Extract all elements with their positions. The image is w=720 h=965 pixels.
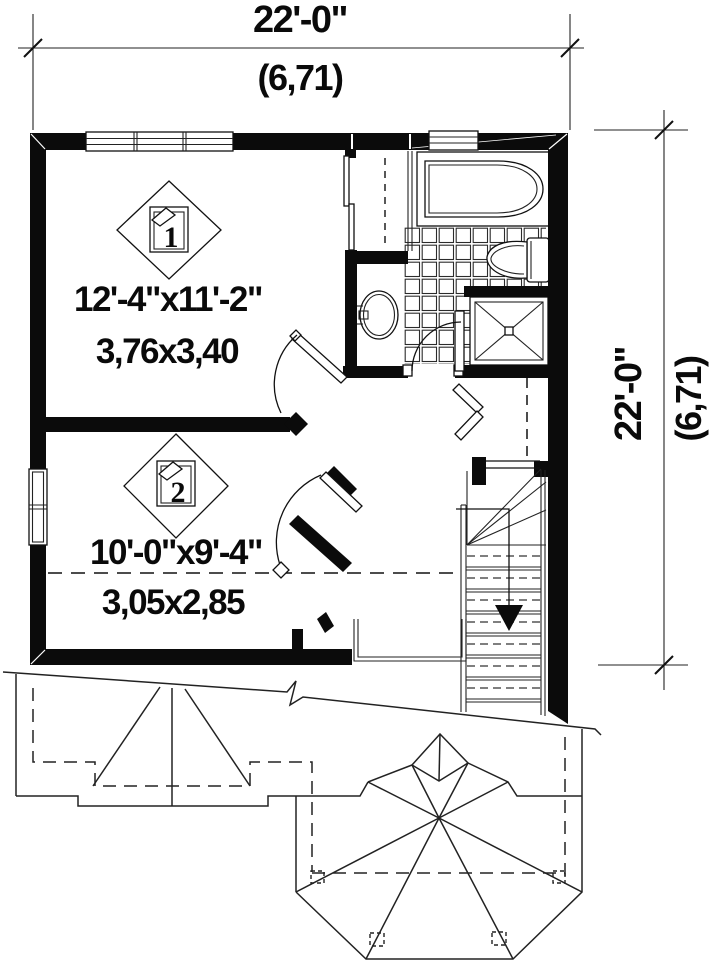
top-dimension-metric: (6,71) [257,57,343,98]
left-window [29,469,47,545]
room-1-size-metric: 3,76x3,40 [96,332,239,371]
right-dimension-imperial: 22'-0" [608,347,650,441]
top-dimension-imperial: 22'-0" [253,0,347,41]
floor-plan-page: 22'-0" (6,71) 22'-0" (6,71) [0,0,720,965]
room-2-size-imperial: 10'-0"x9'-4" [90,533,262,572]
triple-window [86,132,233,151]
room-1-size-imperial: 12'-4"x11'-2" [74,280,262,319]
room-2-number: 2 [171,476,186,509]
right-dimension-metric: (6,71) [668,356,709,442]
door-leaf [455,311,464,371]
room-1-number: 1 [164,221,179,254]
bathroom-window [429,131,478,150]
floor-plan-drawing: 22'-0" (6,71) 22'-0" (6,71) [0,0,720,965]
shower [470,297,548,365]
room-2-size-metric: 3,05x2,85 [102,583,245,622]
door-jamb [403,365,412,376]
shower-drain [505,327,513,335]
